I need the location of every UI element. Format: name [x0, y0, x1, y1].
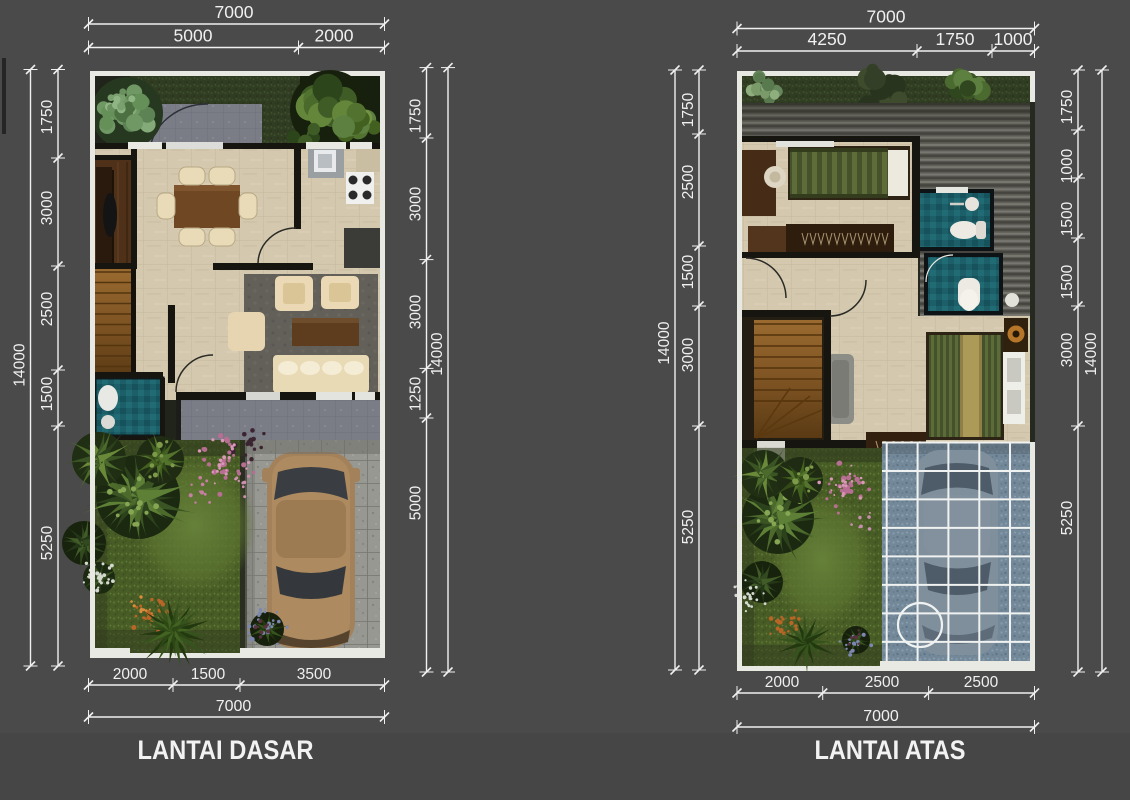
svg-text:14000: 14000: [1083, 332, 1100, 375]
svg-text:2500: 2500: [680, 164, 697, 199]
svg-text:1500: 1500: [1059, 201, 1076, 236]
svg-text:2500: 2500: [39, 291, 56, 326]
svg-text:1500: 1500: [1059, 264, 1076, 299]
svg-text:1000: 1000: [1059, 148, 1076, 183]
svg-text:1250: 1250: [408, 376, 425, 411]
svg-text:14000: 14000: [429, 332, 446, 375]
svg-text:1500: 1500: [191, 666, 226, 683]
svg-text:3000: 3000: [1059, 332, 1076, 367]
svg-text:1750: 1750: [408, 98, 425, 133]
svg-text:3000: 3000: [39, 190, 56, 225]
svg-text:1750: 1750: [680, 92, 697, 127]
svg-text:3000: 3000: [680, 337, 697, 372]
svg-text:2000: 2000: [113, 666, 148, 683]
svg-text:7000: 7000: [216, 698, 252, 715]
svg-text:3000: 3000: [408, 294, 425, 329]
svg-text:14000: 14000: [12, 343, 29, 386]
svg-text:LANTAI ATAS: LANTAI ATAS: [815, 735, 966, 765]
svg-text:7000: 7000: [867, 7, 906, 27]
svg-text:5000: 5000: [408, 485, 425, 520]
svg-text:1000: 1000: [994, 29, 1033, 49]
svg-text:3000: 3000: [408, 186, 425, 221]
svg-text:1750: 1750: [39, 99, 56, 134]
svg-text:5250: 5250: [1059, 500, 1076, 535]
svg-text:5250: 5250: [39, 525, 56, 560]
svg-text:2500: 2500: [865, 674, 900, 691]
svg-text:2000: 2000: [765, 674, 800, 691]
svg-text:2500: 2500: [964, 674, 999, 691]
svg-text:1500: 1500: [680, 254, 697, 289]
svg-text:2000: 2000: [315, 26, 354, 46]
svg-text:LANTAI DASAR: LANTAI DASAR: [138, 735, 314, 765]
svg-text:7000: 7000: [863, 708, 899, 725]
svg-text:1750: 1750: [936, 29, 975, 49]
svg-text:1750: 1750: [1059, 89, 1076, 124]
svg-text:14000: 14000: [656, 321, 673, 364]
svg-text:3500: 3500: [297, 666, 332, 683]
svg-text:5000: 5000: [174, 26, 213, 46]
svg-text:4250: 4250: [808, 29, 847, 49]
svg-text:1500: 1500: [39, 376, 56, 411]
svg-text:5250: 5250: [680, 509, 697, 544]
svg-text:7000: 7000: [215, 2, 254, 22]
